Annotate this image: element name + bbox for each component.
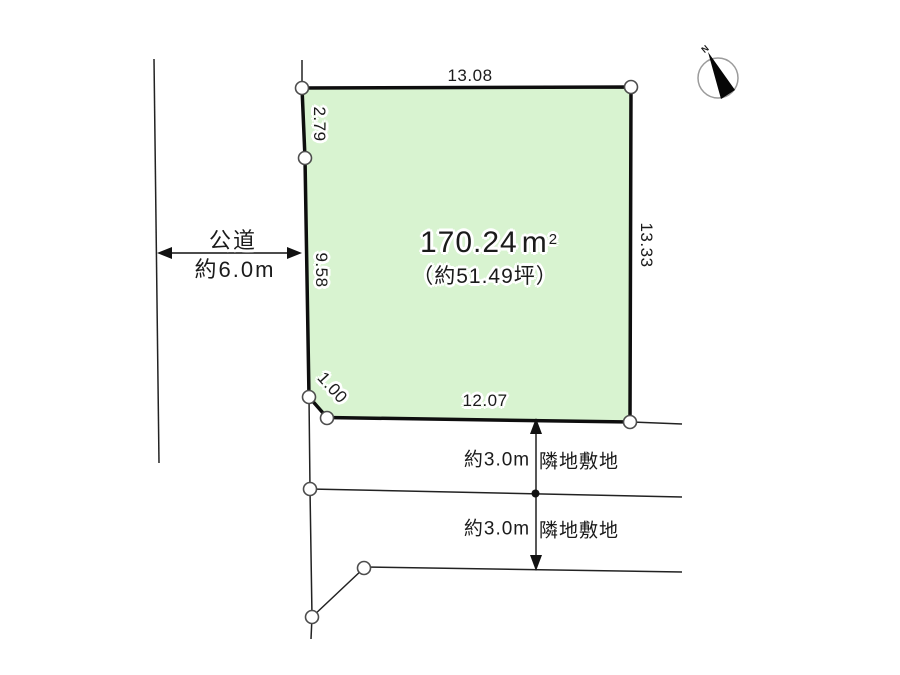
neighbor-1-distance-label: 約3.0m xyxy=(464,445,530,472)
vertex-node xyxy=(299,152,312,165)
neighbor-2-distance-label: 約3.0m xyxy=(464,514,530,541)
neighbor-1-label: 隣地敷地 xyxy=(539,447,619,474)
arrowhead-down-icon xyxy=(530,555,542,571)
vertex-node xyxy=(304,483,317,496)
plot-area-tsubo-text: （約51.49坪） xyxy=(412,260,558,290)
left-boundary-chain-line xyxy=(309,397,312,639)
compass xyxy=(698,52,738,99)
survey-drawing xyxy=(0,0,900,675)
vertex-node xyxy=(296,82,309,95)
vertex-node xyxy=(624,416,637,429)
land-plot-diagram: 13.08 2.79 9.58 1.00 12.07 13.33 170.24m… xyxy=(0,0,900,675)
vertex-node xyxy=(358,562,371,575)
arrowhead-left-icon xyxy=(157,247,172,259)
neighbor-boundary-line-1 xyxy=(310,489,682,497)
dimension-right: 13.33 xyxy=(636,222,656,267)
vertex-node xyxy=(625,81,638,94)
arrowhead-right-icon xyxy=(287,247,302,259)
road-left-boundary-line xyxy=(154,59,159,463)
dimension-upper-left: 2.79 xyxy=(309,106,329,141)
plot-area-text: 170.24m2 xyxy=(420,226,558,260)
dimension-left: 9.58 xyxy=(311,252,331,287)
neighbor-2-label: 隣地敷地 xyxy=(539,516,619,543)
plot-area-value: 170.24 xyxy=(420,226,518,259)
vertex-node xyxy=(306,611,319,624)
vertex-node xyxy=(321,412,334,425)
vertex-node xyxy=(303,391,316,404)
road-width-label: 約6.0m xyxy=(195,252,276,284)
plot-area-unit-sup: 2 xyxy=(549,231,558,248)
neighbor-boundary-line-2 xyxy=(364,567,682,572)
neighbor-line-right-of-plot xyxy=(633,422,682,424)
plot-area-unit: m xyxy=(522,226,548,259)
arrow-midpoint-dot xyxy=(532,490,540,498)
road-name-label: 公道 xyxy=(209,223,257,255)
dimension-bottom: 12.07 xyxy=(462,391,507,411)
diagonal-boundary-line xyxy=(312,568,364,617)
dimension-top: 13.08 xyxy=(447,66,492,86)
